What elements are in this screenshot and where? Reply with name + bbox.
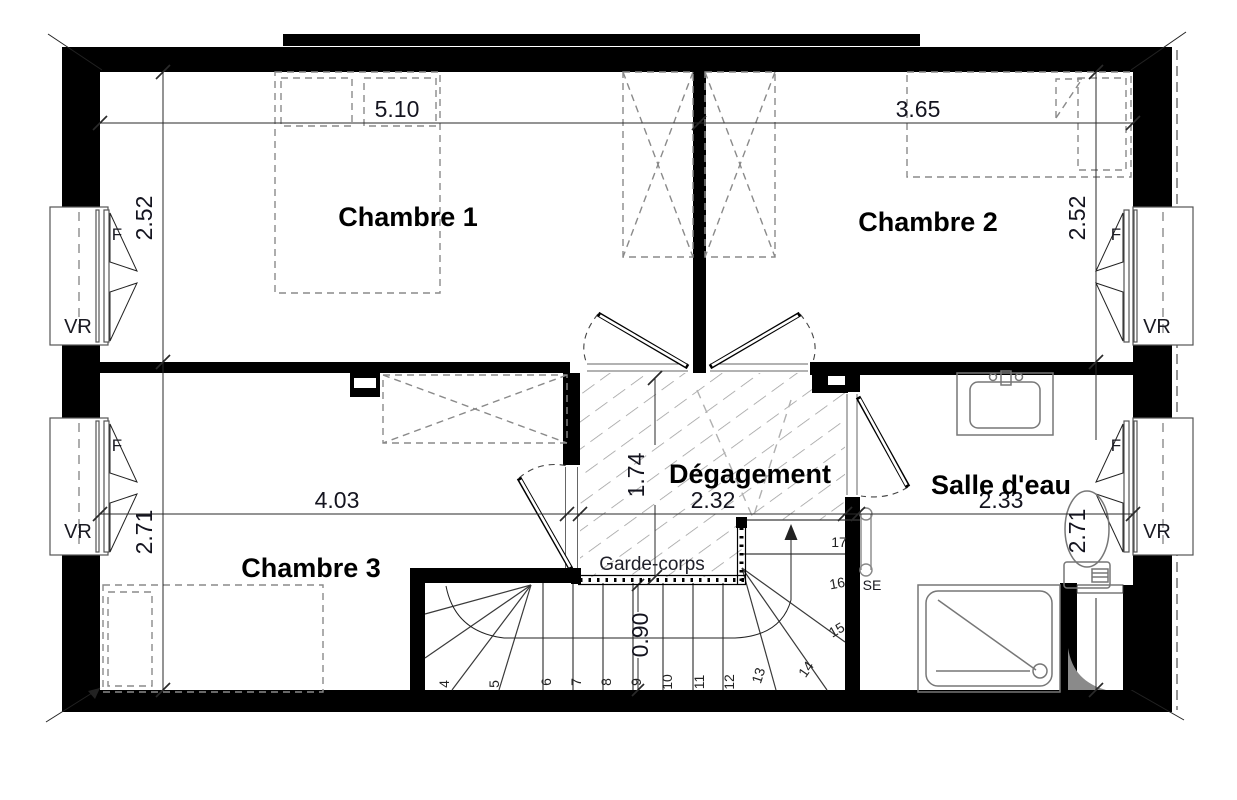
window-right-top: F VR bbox=[1096, 207, 1193, 345]
sink bbox=[957, 371, 1053, 435]
svg-text:15: 15 bbox=[826, 619, 848, 641]
label-chambre2: Chambre 2 bbox=[858, 207, 998, 237]
label-degagement: Dégagement bbox=[669, 459, 831, 489]
svg-text:14: 14 bbox=[795, 658, 817, 680]
window-left-bottom: F VR bbox=[50, 418, 137, 555]
dim-stair-width: 0.90 bbox=[627, 613, 653, 658]
svg-text:9: 9 bbox=[628, 678, 644, 686]
window-label: F bbox=[112, 225, 122, 244]
dim-chambre1-height: 2.52 bbox=[131, 196, 157, 241]
svg-text:5: 5 bbox=[486, 680, 502, 688]
dim-degagement-width: 2.32 bbox=[691, 487, 736, 513]
svg-text:13: 13 bbox=[748, 665, 768, 685]
towel-radiator-label: SE bbox=[863, 577, 882, 593]
dim-chambre3-height: 2.71 bbox=[131, 510, 157, 555]
svg-text:7: 7 bbox=[568, 678, 584, 686]
label-chambre1: Chambre 1 bbox=[338, 202, 478, 232]
dim-chambre2-width: 3.65 bbox=[896, 96, 941, 122]
window-label: F bbox=[112, 436, 122, 455]
wardrobe-chambre1 bbox=[623, 72, 693, 257]
shutter-label: VR bbox=[1143, 521, 1171, 543]
door-chambre1 bbox=[584, 314, 688, 367]
floorplan-drawing: F VR F VR F VR F VR bbox=[0, 0, 1237, 800]
dimension-top: 5.10 3.65 bbox=[93, 96, 1140, 130]
dim-salle-eau-height: 2.71 bbox=[1064, 509, 1090, 554]
shutter-label: VR bbox=[1143, 316, 1171, 338]
wardrobe-chambre2 bbox=[705, 72, 775, 257]
svg-text:6: 6 bbox=[538, 678, 554, 686]
door-chambre2 bbox=[710, 314, 815, 367]
dim-degagement-height: 1.74 bbox=[623, 452, 649, 497]
bed-chambre3 bbox=[103, 585, 323, 692]
label-chambre3: Chambre 3 bbox=[241, 553, 381, 583]
shower bbox=[918, 585, 1060, 692]
svg-text:8: 8 bbox=[598, 678, 614, 686]
dim-chambre3-width: 4.03 bbox=[315, 487, 360, 513]
svg-text:11: 11 bbox=[691, 675, 707, 690]
svg-text:12: 12 bbox=[721, 674, 737, 690]
towel-radiator bbox=[860, 508, 872, 576]
window-label: F bbox=[1111, 436, 1121, 455]
svg-text:10: 10 bbox=[659, 674, 675, 690]
shutter-label: VR bbox=[64, 521, 92, 543]
window-right-bottom: F VR bbox=[1096, 418, 1193, 555]
svg-text:17: 17 bbox=[831, 534, 847, 550]
bed-chambre2 bbox=[907, 72, 1131, 177]
dimension-left: 2.52 2.71 bbox=[131, 65, 170, 697]
dim-chambre2-height: 2.52 bbox=[1064, 196, 1090, 241]
wardrobe-chambre3 bbox=[383, 375, 567, 443]
shutter-label: VR bbox=[64, 316, 92, 338]
door-salle-eau bbox=[858, 397, 908, 497]
svg-text:16: 16 bbox=[828, 574, 846, 592]
window-label: F bbox=[1111, 225, 1121, 244]
svg-text:4: 4 bbox=[436, 680, 452, 688]
window-left-top: F VR bbox=[50, 207, 137, 345]
garde-corps-label: Garde-corps bbox=[599, 554, 705, 575]
walk-line-arrow bbox=[785, 524, 798, 540]
dim-chambre1-width: 5.10 bbox=[375, 96, 420, 122]
floorplan-sheet: F VR F VR F VR F VR bbox=[0, 0, 1237, 800]
label-salle-eau: Salle d'eau bbox=[931, 470, 1071, 500]
